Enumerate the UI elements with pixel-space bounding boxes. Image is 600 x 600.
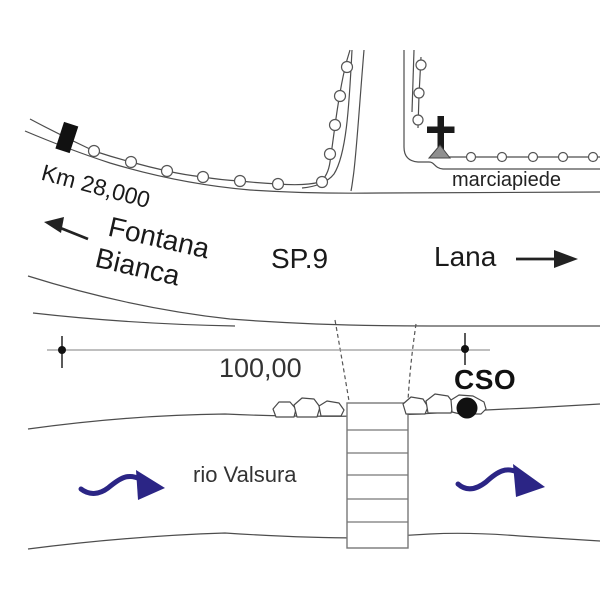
fence-post-icon	[325, 149, 336, 160]
fence-post-icon	[559, 153, 568, 162]
site-sketch-map: Km 28,000 Fontana Bianca SP.9 Lana marci…	[0, 0, 600, 600]
fence-post-icon	[162, 166, 173, 177]
dimension-dot-right	[461, 345, 469, 353]
road-edge-lower-a	[28, 276, 600, 326]
sketch-linework	[0, 0, 600, 600]
fontana-arrow-shaft	[58, 227, 88, 239]
fence-post-icon	[498, 153, 507, 162]
fence-post-icon	[589, 153, 598, 162]
fence-post-icon	[126, 157, 137, 168]
bridge-structure	[347, 403, 408, 548]
flow-arrow-right-curve	[458, 470, 517, 489]
rock	[273, 402, 296, 417]
guardrail-line	[30, 50, 350, 185]
side-road-left-edge-b	[351, 50, 364, 191]
fence-post-icon	[467, 153, 476, 162]
direction-arrow-fontana	[44, 217, 88, 239]
river-name-label: rio Valsura	[193, 464, 297, 486]
wayside-cross-icon	[427, 116, 455, 158]
cso-point	[457, 398, 478, 419]
sidewalk-label: marciapiede	[452, 170, 561, 190]
cross-horizontal-bar	[427, 127, 455, 134]
km-stone-marker	[55, 122, 78, 153]
dimension-dot-left	[58, 346, 66, 354]
direction-arrow-lana	[516, 250, 578, 268]
fence-post-icon	[529, 153, 538, 162]
station-code-label: CSO	[454, 366, 516, 394]
dashed-guides	[335, 320, 416, 401]
fence-post-icon	[235, 176, 246, 187]
lana-arrow-head	[554, 250, 578, 268]
rock	[294, 398, 320, 417]
fence-post-icon	[414, 88, 424, 98]
fence-post-icon	[342, 62, 353, 73]
fence-post-icon	[335, 91, 346, 102]
direction-right-label: Lana	[434, 243, 496, 271]
fence-post-icon	[198, 172, 209, 183]
side-road-right-edge-a-and-sidewalk	[404, 50, 600, 169]
flow-arrow-right-head	[513, 464, 545, 497]
fence-post-icon	[330, 120, 341, 131]
fence-post-icon	[416, 60, 426, 70]
flow-arrow-right	[458, 464, 545, 497]
dashed-guide-right	[408, 324, 416, 401]
flow-arrow-left-head	[136, 470, 165, 500]
road-edge-lower-b	[33, 313, 235, 326]
cross-base	[429, 145, 450, 158]
fence-post-icon	[273, 179, 284, 190]
side-road-right-edge-b	[412, 50, 414, 112]
distance-label: 100,00	[219, 355, 302, 382]
fontana-arrow-head	[44, 217, 64, 233]
river-bank-lower	[28, 533, 600, 549]
flow-arrow-left	[81, 470, 165, 500]
dashed-guide-left	[335, 320, 349, 401]
fence-post-icon	[89, 146, 100, 157]
fence-post-icon	[413, 115, 423, 125]
fence-post-icon	[317, 177, 328, 188]
rock	[319, 401, 344, 416]
route-label: SP.9	[271, 245, 328, 273]
rock	[403, 397, 428, 414]
main-road-lower	[28, 276, 600, 326]
flow-arrow-left-curve	[81, 476, 140, 493]
rock	[426, 394, 454, 413]
